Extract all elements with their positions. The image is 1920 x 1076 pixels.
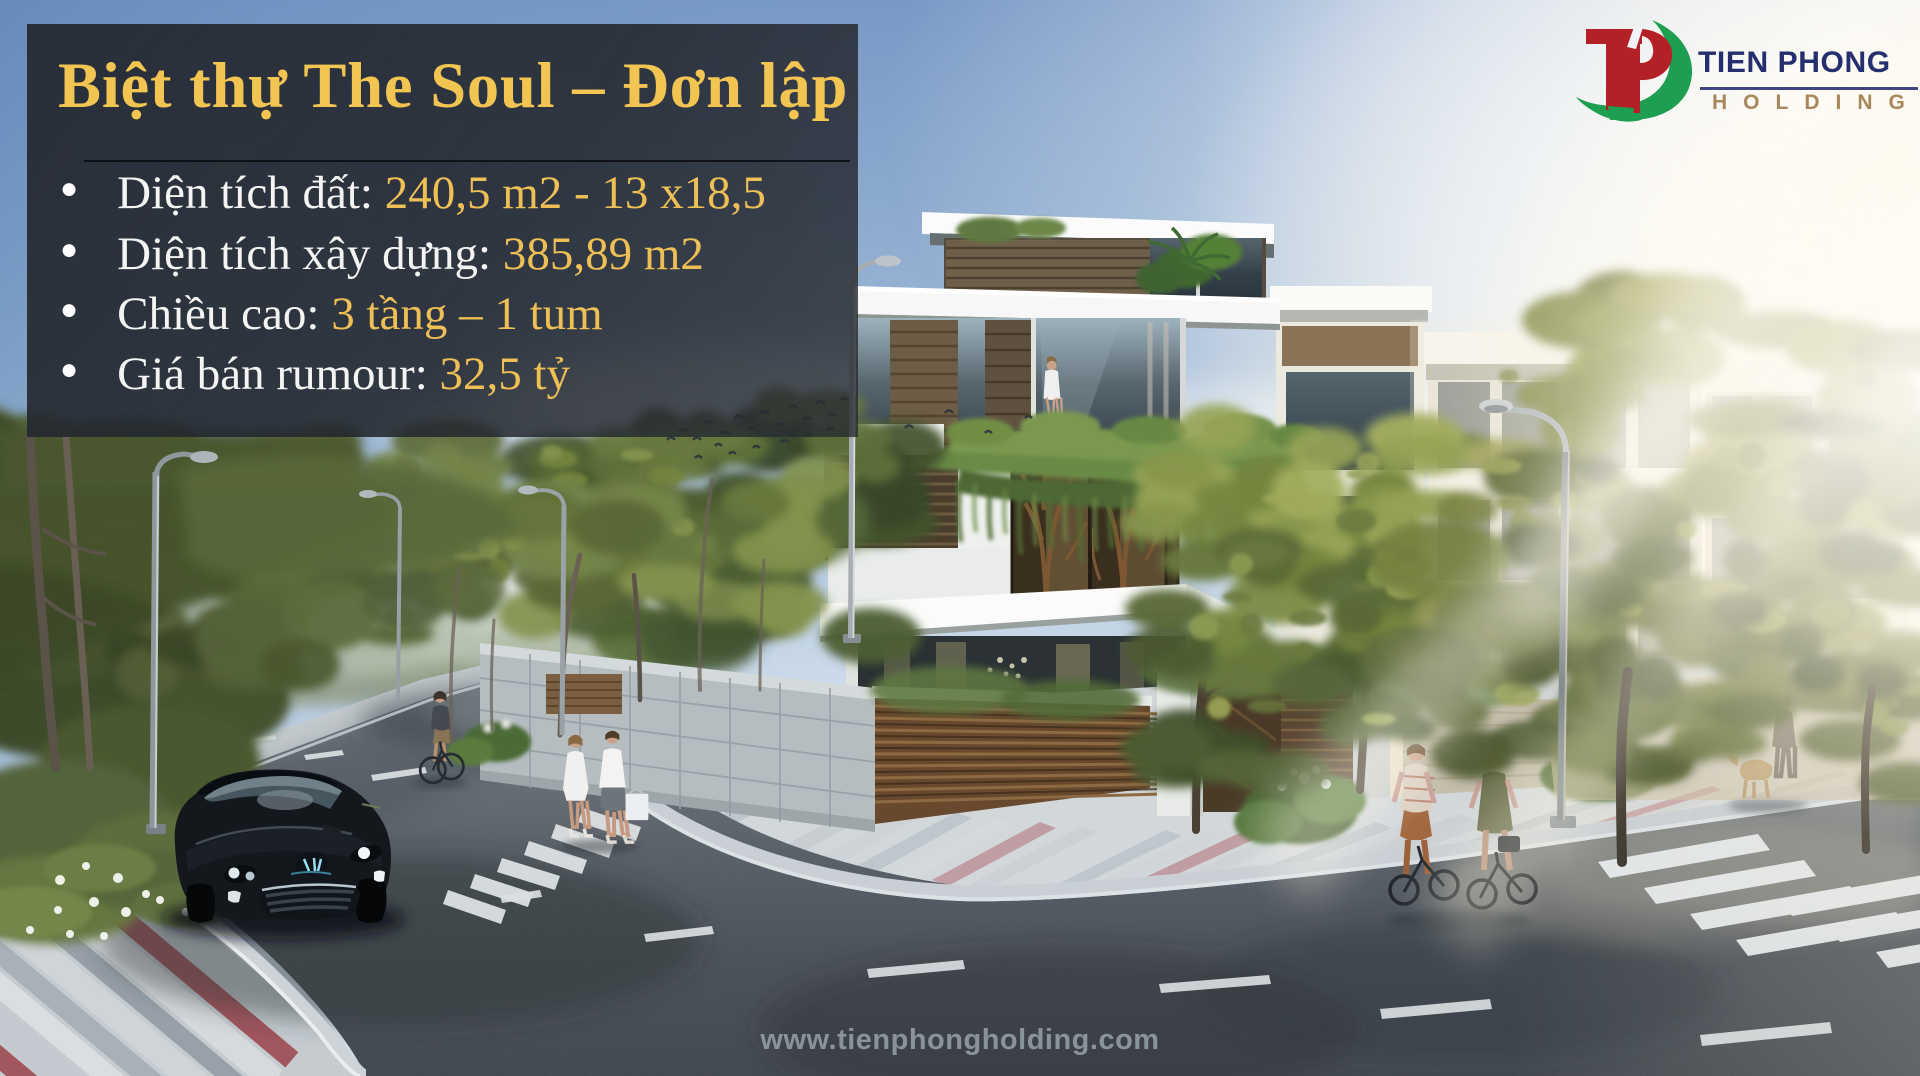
svg-text:TIEN PHONG: TIEN PHONG [1698, 46, 1891, 79]
svg-text:HOLDING: HOLDING [1712, 91, 1920, 114]
